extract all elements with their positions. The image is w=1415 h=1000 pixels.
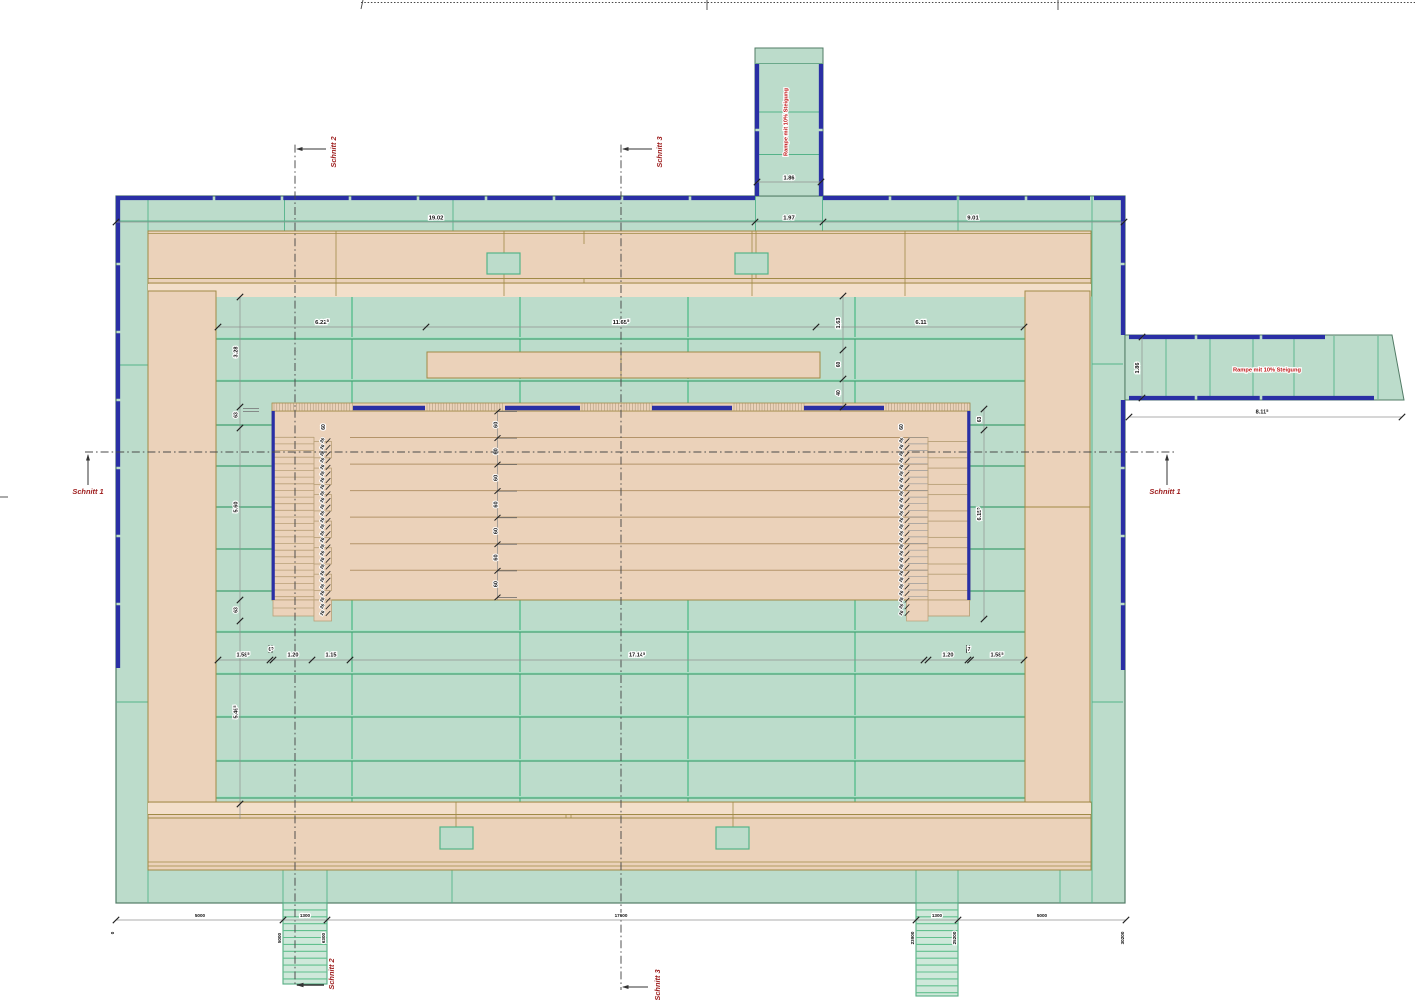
svg-text:60: 60 — [494, 422, 500, 428]
svg-text:1.86: 1.86 — [1135, 363, 1141, 374]
svg-text:60: 60 — [494, 501, 500, 507]
svg-text:63: 63 — [234, 607, 240, 613]
svg-text:Schnitt 2: Schnitt 2 — [329, 136, 338, 168]
svg-text:6.11: 6.11 — [915, 320, 927, 326]
svg-text:63: 63 — [234, 412, 240, 418]
svg-text:Rampe mit 10% Steigung: Rampe mit 10% Steigung — [784, 88, 790, 156]
svg-text:1.20: 1.20 — [943, 653, 954, 659]
svg-text:6300: 6300 — [321, 932, 326, 943]
svg-text:1.63: 1.63 — [836, 318, 842, 329]
svg-text:3.28: 3.28 — [234, 347, 240, 358]
svg-text:17.145: 17.145 — [629, 652, 645, 659]
svg-text:60: 60 — [899, 424, 905, 430]
svg-text:60: 60 — [836, 362, 842, 368]
svg-text:5000: 5000 — [1037, 913, 1048, 918]
svg-text:Schnitt 1: Schnitt 1 — [1149, 487, 1180, 496]
svg-text:1.86: 1.86 — [784, 176, 795, 182]
svg-text:Schnitt 2: Schnitt 2 — [327, 958, 336, 990]
svg-text:60: 60 — [494, 581, 500, 587]
svg-text:60: 60 — [494, 528, 500, 534]
svg-text:5.60: 5.60 — [234, 502, 240, 513]
svg-text:23900: 23900 — [910, 931, 915, 944]
svg-text:Rampe mit 10% Steigung: Rampe mit 10% Steigung — [1233, 368, 1301, 374]
svg-text:5000: 5000 — [277, 932, 282, 943]
svg-text:19.02: 19.02 — [429, 216, 444, 222]
svg-text:60: 60 — [494, 475, 500, 481]
svg-text:60: 60 — [494, 554, 500, 560]
svg-text:17600: 17600 — [615, 913, 628, 918]
svg-text:Schnitt 3: Schnitt 3 — [653, 969, 662, 1000]
svg-text:1.97: 1.97 — [783, 216, 795, 222]
svg-text:Schnitt 3: Schnitt 3 — [655, 136, 664, 168]
svg-text:1.20: 1.20 — [288, 653, 299, 659]
svg-text:Schnitt 1: Schnitt 1 — [72, 487, 103, 496]
svg-text:1.15: 1.15 — [326, 653, 337, 659]
svg-text:60: 60 — [494, 448, 500, 454]
svg-text:9.01: 9.01 — [967, 216, 979, 222]
svg-text:25200: 25200 — [952, 931, 957, 944]
svg-text:60: 60 — [321, 424, 327, 430]
svg-text:7: 7 — [968, 647, 971, 653]
svg-text:1300: 1300 — [932, 913, 943, 918]
svg-text:1300: 1300 — [300, 913, 311, 918]
svg-text:63: 63 — [977, 417, 983, 423]
svg-text:0: 0 — [110, 931, 115, 934]
svg-text:40: 40 — [836, 390, 842, 396]
svg-text:30200: 30200 — [1120, 931, 1125, 944]
svg-text:5000: 5000 — [195, 913, 206, 918]
